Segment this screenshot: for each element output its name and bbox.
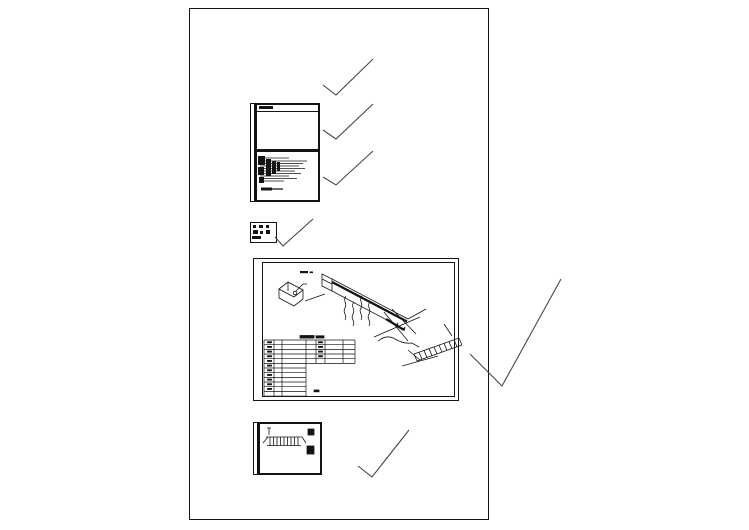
checkmark-6 <box>358 430 409 477</box>
checkmark-watermarks <box>0 0 749 530</box>
checkmark-3 <box>323 151 373 185</box>
canvas: { "app": { "kind": "cad-drawing-preview"… <box>0 0 749 530</box>
checkmark-2 <box>323 104 373 139</box>
checkmark-5 <box>470 279 561 386</box>
checkmark-1 <box>323 59 373 95</box>
checkmark-4 <box>275 219 313 246</box>
